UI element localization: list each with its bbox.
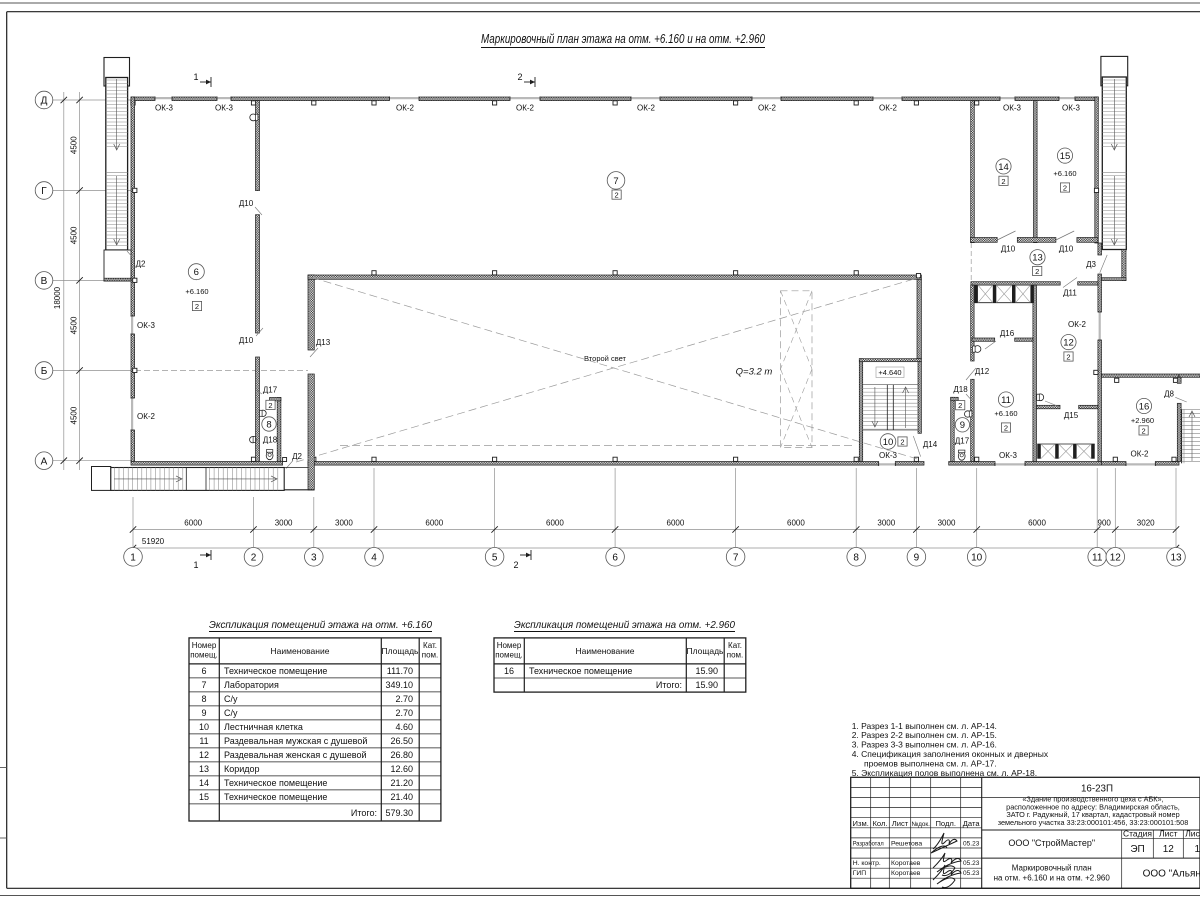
svg-text:Экспликация помещений этажа на: Экспликация помещений этажа на отм. +2.9…: [514, 619, 735, 631]
svg-text:4500: 4500: [69, 316, 78, 334]
svg-text:Маркировочный план: Маркировочный план: [1012, 864, 1092, 873]
svg-text:1: 1: [193, 560, 198, 570]
svg-text:6000: 6000: [546, 519, 564, 528]
svg-text:3020: 3020: [1137, 519, 1155, 528]
svg-text:Д14: Д14: [923, 440, 938, 449]
svg-text:2: 2: [958, 401, 962, 410]
svg-text:3000: 3000: [275, 519, 293, 528]
svg-text:21.40: 21.40: [390, 792, 413, 802]
svg-text:Д18: Д18: [263, 435, 278, 444]
svg-text:26.80: 26.80: [390, 750, 413, 760]
svg-text:10: 10: [883, 437, 894, 448]
svg-text:16: 16: [504, 666, 514, 676]
svg-text:10: 10: [199, 722, 209, 732]
svg-text:С/у: С/у: [224, 694, 238, 704]
svg-text:ЭП: ЭП: [1130, 844, 1144, 855]
svg-text:2.70: 2.70: [395, 708, 413, 718]
svg-text:ОК-2: ОК-2: [1131, 449, 1150, 458]
svg-text:+2.960: +2.960: [1131, 416, 1154, 425]
svg-text:Д: Д: [41, 96, 48, 107]
svg-text:Коридор: Коридор: [224, 764, 260, 774]
svg-text:Коротаев: Коротаев: [891, 870, 921, 877]
svg-text:4500: 4500: [69, 406, 78, 424]
svg-text:Раздевальная женская с душевой: Раздевальная женская с душевой: [224, 750, 366, 760]
svg-text:Коротаев: Коротаев: [891, 860, 921, 867]
svg-text:6000: 6000: [425, 519, 443, 528]
svg-text:18000: 18000: [53, 286, 62, 309]
svg-text:11: 11: [1001, 395, 1011, 406]
svg-text:2: 2: [268, 401, 272, 410]
svg-text:6000: 6000: [667, 519, 685, 528]
svg-text:3000: 3000: [938, 519, 956, 528]
svg-text:8: 8: [266, 419, 271, 430]
svg-text:Итого:: Итого:: [351, 808, 377, 818]
svg-text:Д18: Д18: [953, 385, 968, 394]
svg-text:С/у: С/у: [224, 708, 238, 718]
svg-text:5. Экспликация полов выполнена: 5. Экспликация полов выполнена см. л. АР…: [852, 768, 1037, 778]
svg-text:пом.: пом.: [422, 651, 439, 660]
svg-text:6000: 6000: [1028, 519, 1046, 528]
svg-text:Q=3.2 т: Q=3.2 т: [736, 367, 773, 378]
svg-text:Д10: Д10: [239, 336, 254, 345]
svg-text:2: 2: [900, 438, 904, 447]
svg-text:3000: 3000: [335, 519, 353, 528]
svg-text:05.23: 05.23: [963, 841, 980, 848]
svg-text:№док.: №док.: [911, 821, 930, 828]
svg-text:5: 5: [492, 552, 498, 563]
svg-text:2: 2: [251, 552, 257, 563]
svg-text:4500: 4500: [69, 136, 78, 154]
svg-text:13: 13: [1170, 552, 1182, 563]
svg-text:12: 12: [1063, 338, 1074, 349]
svg-text:4500: 4500: [69, 226, 78, 244]
svg-text:2: 2: [195, 302, 199, 311]
svg-text:Д12: Д12: [975, 367, 990, 376]
svg-text:Д8: Д8: [1164, 390, 1174, 399]
svg-text:Номер: Номер: [192, 641, 217, 650]
svg-text:пом.: пом.: [727, 651, 744, 660]
svg-text:ОК-2: ОК-2: [137, 412, 156, 421]
svg-text:6000: 6000: [184, 519, 202, 528]
svg-text:12: 12: [1110, 552, 1122, 563]
svg-text:помещ.: помещ.: [190, 651, 218, 660]
svg-text:Номер: Номер: [497, 641, 522, 650]
svg-text:Техническое помещение: Техническое помещение: [224, 666, 327, 676]
svg-text:А: А: [41, 456, 48, 467]
svg-text:3: 3: [311, 552, 317, 563]
svg-text:Д10: Д10: [1001, 245, 1016, 254]
svg-text:Дата: Дата: [963, 819, 981, 828]
svg-text:1: 1: [130, 552, 136, 563]
svg-text:8: 8: [853, 552, 859, 563]
svg-text:4: 4: [371, 552, 377, 563]
svg-text:6000: 6000: [787, 519, 805, 528]
svg-text:Подл.: Подл.: [935, 819, 956, 828]
svg-text:Г: Г: [41, 186, 47, 197]
svg-text:Д17: Д17: [955, 436, 970, 445]
svg-text:51920: 51920: [142, 537, 165, 546]
svg-text:1: 1: [193, 72, 198, 82]
svg-text:Д10: Д10: [1059, 245, 1074, 254]
svg-text:ОК-2: ОК-2: [879, 104, 898, 113]
svg-text:Наименование: Наименование: [576, 646, 635, 656]
svg-text:Д15: Д15: [1064, 411, 1079, 420]
svg-text:2: 2: [1066, 353, 1070, 362]
svg-text:05.23: 05.23: [963, 860, 980, 867]
svg-text:Маркировочный план этажа на от: Маркировочный план этажа на отм. +6.160 …: [481, 32, 765, 46]
svg-text:Площадь: Площадь: [686, 646, 724, 656]
svg-text:ОК-3: ОК-3: [879, 451, 898, 460]
svg-text:14: 14: [998, 162, 1009, 173]
svg-text:7: 7: [201, 680, 206, 690]
svg-text:21.20: 21.20: [390, 778, 413, 788]
svg-text:Лист: Лист: [892, 819, 909, 828]
svg-text:8: 8: [201, 694, 206, 704]
svg-text:+6.160: +6.160: [185, 287, 208, 296]
svg-text:+4.640: +4.640: [878, 368, 901, 377]
svg-text:Площадь: Площадь: [381, 646, 419, 656]
svg-text:Второй свет: Второй свет: [584, 354, 626, 363]
svg-text:Н. контр.: Н. контр.: [853, 860, 881, 867]
svg-text:на отм. +6.160 и на отм. +2.96: на отм. +6.160 и на отм. +2.960: [994, 874, 1111, 883]
svg-text:6: 6: [194, 267, 199, 278]
svg-text:Д2: Д2: [292, 452, 302, 461]
svg-text:Лестничная клетка: Лестничная клетка: [224, 722, 303, 732]
svg-text:579.30: 579.30: [385, 808, 413, 818]
svg-text:2: 2: [513, 560, 518, 570]
svg-text:13: 13: [1032, 253, 1043, 264]
svg-text:+6.160: +6.160: [994, 409, 1017, 418]
svg-text:15: 15: [1060, 151, 1071, 162]
svg-text:ОК-2: ОК-2: [396, 104, 415, 113]
svg-text:16: 16: [1139, 401, 1150, 412]
svg-text:13: 13: [1194, 844, 1200, 855]
svg-text:В: В: [41, 276, 48, 287]
svg-text:+6.160: +6.160: [1053, 169, 1076, 178]
svg-text:12: 12: [1163, 844, 1175, 855]
svg-text:14: 14: [199, 778, 209, 788]
svg-text:ОК-2: ОК-2: [1068, 320, 1087, 329]
svg-text:Техническое помещение: Техническое помещение: [224, 778, 327, 788]
svg-text:15: 15: [199, 792, 209, 802]
svg-text:ООО "СтройМастер": ООО "СтройМастер": [1008, 838, 1095, 848]
svg-text:Б: Б: [41, 366, 48, 377]
svg-text:4.60: 4.60: [395, 722, 413, 732]
svg-text:Д2: Д2: [136, 260, 146, 269]
svg-text:Решетова: Решетова: [891, 841, 922, 848]
svg-text:Стадия: Стадия: [1123, 829, 1152, 839]
svg-text:10: 10: [971, 552, 983, 563]
svg-text:15.90: 15.90: [695, 666, 718, 676]
svg-text:7: 7: [613, 176, 618, 187]
svg-text:11: 11: [199, 736, 208, 746]
svg-text:Изм.: Изм.: [853, 819, 869, 828]
svg-text:Техническое помещение: Техническое помещение: [529, 666, 632, 676]
svg-text:Техническое помещение: Техническое помещение: [224, 792, 327, 802]
svg-text:2: 2: [1001, 177, 1005, 186]
svg-text:Д11: Д11: [1063, 289, 1077, 298]
svg-text:2: 2: [517, 72, 522, 82]
svg-text:ОК-2: ОК-2: [758, 104, 777, 113]
svg-text:Д10: Д10: [239, 199, 254, 208]
svg-text:помещ.: помещ.: [495, 651, 523, 660]
svg-text:05.23: 05.23: [963, 870, 980, 877]
svg-text:2.70: 2.70: [395, 694, 413, 704]
svg-text:Экспликация помещений этажа на: Экспликация помещений этажа на отм. +6.1…: [209, 619, 432, 631]
svg-text:111.70: 111.70: [387, 666, 413, 676]
svg-text:Кат.: Кат.: [423, 641, 437, 650]
svg-text:Разработал: Разработал: [853, 840, 884, 848]
svg-text:2: 2: [1035, 267, 1039, 276]
svg-text:15.90: 15.90: [695, 680, 718, 690]
svg-text:2: 2: [1142, 426, 1146, 435]
svg-text:2: 2: [1004, 424, 1008, 433]
svg-text:ОК-3: ОК-3: [999, 451, 1018, 460]
svg-text:16-23П: 16-23П: [1081, 783, 1113, 794]
svg-text:Кол.: Кол.: [872, 819, 887, 828]
svg-text:Лаборатория: Лаборатория: [224, 680, 279, 690]
svg-text:9: 9: [960, 420, 965, 431]
svg-text:ОК-3: ОК-3: [1062, 104, 1081, 113]
svg-text:Д3: Д3: [1086, 260, 1096, 269]
svg-text:Листов: Листов: [1185, 829, 1200, 839]
svg-text:Д17: Д17: [263, 386, 278, 395]
svg-text:9: 9: [914, 552, 920, 563]
svg-text:Наименование: Наименование: [271, 646, 330, 656]
svg-text:9: 9: [201, 708, 206, 718]
svg-text:349.10: 349.10: [385, 680, 413, 690]
svg-text:земельного участка 33:23:00010: земельного участка 33:23:000101:456, 33:…: [998, 818, 1189, 827]
svg-text:Раздевальная мужская с душевой: Раздевальная мужская с душевой: [224, 736, 367, 746]
svg-text:Итого:: Итого:: [656, 680, 682, 690]
svg-text:ОК-3: ОК-3: [155, 104, 174, 113]
svg-text:ОК-3: ОК-3: [137, 321, 156, 330]
svg-text:2: 2: [615, 191, 619, 200]
svg-text:ООО "Альянс": ООО "Альянс": [1143, 869, 1200, 880]
svg-text:ОК-2: ОК-2: [637, 104, 656, 113]
svg-text:900: 900: [1098, 519, 1112, 528]
svg-text:26.50: 26.50: [390, 736, 413, 746]
svg-text:11: 11: [1092, 552, 1103, 563]
svg-text:ОК-3: ОК-3: [1003, 104, 1022, 113]
svg-text:ОК-3: ОК-3: [215, 104, 234, 113]
svg-text:6: 6: [612, 552, 618, 563]
svg-text:ОК-2: ОК-2: [516, 104, 535, 113]
svg-text:12: 12: [199, 750, 209, 760]
svg-text:2: 2: [1063, 184, 1067, 193]
svg-text:6: 6: [201, 666, 206, 676]
svg-text:Лист: Лист: [1159, 829, 1178, 839]
svg-text:12.60: 12.60: [390, 764, 413, 774]
svg-text:13: 13: [199, 764, 209, 774]
svg-text:ГИП: ГИП: [853, 870, 867, 877]
svg-text:Д13: Д13: [316, 338, 331, 347]
svg-text:7: 7: [733, 552, 739, 563]
svg-text:Кат.: Кат.: [728, 641, 742, 650]
svg-text:3000: 3000: [877, 519, 895, 528]
svg-text:Д16: Д16: [1000, 329, 1015, 338]
